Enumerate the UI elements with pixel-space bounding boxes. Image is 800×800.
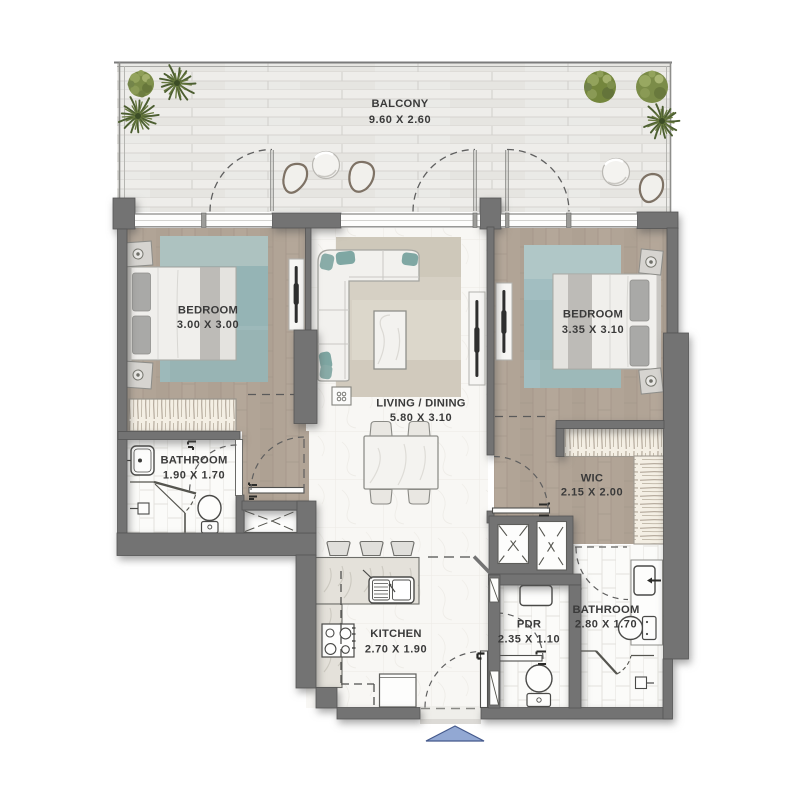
- svg-text:2.70 X 1.90: 2.70 X 1.90: [365, 644, 427, 656]
- svg-text:2.80 X 1.70: 2.80 X 1.70: [575, 619, 637, 631]
- svg-text:BATHROOM: BATHROOM: [572, 604, 639, 616]
- svg-text:BATHROOM: BATHROOM: [160, 455, 227, 467]
- svg-text:3.35 X 3.10: 3.35 X 3.10: [562, 324, 624, 336]
- svg-text:5.80 X 3.10: 5.80 X 3.10: [390, 412, 452, 424]
- svg-text:9.60 X 2.60: 9.60 X 2.60: [369, 114, 431, 126]
- svg-text:KITCHEN: KITCHEN: [370, 628, 421, 640]
- svg-text:BALCONY: BALCONY: [371, 98, 428, 110]
- svg-text:2.35 X 1.10: 2.35 X 1.10: [498, 634, 560, 646]
- svg-text:1.90 X 1.70: 1.90 X 1.70: [163, 470, 225, 482]
- svg-text:BEDROOM: BEDROOM: [563, 309, 623, 321]
- svg-text:2.15 X 2.00: 2.15 X 2.00: [561, 487, 623, 499]
- svg-text:3.00 X 3.00: 3.00 X 3.00: [177, 319, 239, 331]
- svg-text:PDR: PDR: [517, 619, 541, 631]
- svg-text:LIVING / DINING: LIVING / DINING: [376, 398, 466, 410]
- svg-text:WIC: WIC: [581, 473, 604, 485]
- svg-text:BEDROOM: BEDROOM: [178, 305, 238, 317]
